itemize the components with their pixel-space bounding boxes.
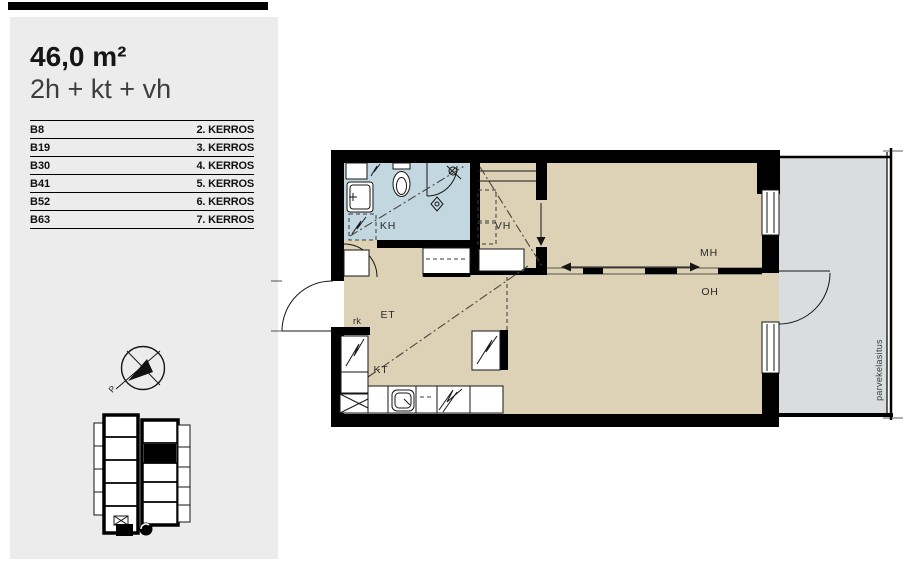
room-label-kt: KT [373,364,388,376]
balcony-floor [779,156,887,413]
hall-closet [344,250,369,276]
livingroom-window [762,322,779,373]
service-shaft [346,163,367,179]
entry-door [271,281,333,331]
kitchen-sink-icon [392,390,414,411]
closet-bench [479,249,524,271]
floorplan-drawing: parvekelasitus KH VH ET KT MH OH rk P [0,0,922,585]
room-label-et: ET [380,309,395,321]
compass-rose: P [106,347,164,395]
cabinet [341,372,368,393]
floorplan-sheet: 46,0 m² 2h + kt + vh B8 2. KERROS B19 3.… [0,0,922,585]
room-label-mh: MH [700,247,718,259]
hall-wardrobe [423,248,470,277]
building-location-diagram [94,415,190,536]
pantry-label-rk: rk [353,316,361,327]
balcony-glazing-label: parvekelasitus [874,339,884,401]
balcony-door-threshold [762,273,779,322]
room-label-kh: KH [380,220,396,232]
room-label-vh: VH [495,220,511,232]
north-needle [128,359,153,381]
sink-icon [347,182,373,212]
floor-fills [344,156,887,414]
room-label-oh: OH [701,286,718,298]
toilet-icon [393,163,410,197]
tall-cabinet-reservation [472,331,500,370]
highlighted-unit [144,444,176,463]
bedroom-window [762,190,779,235]
fridge-reservation [341,336,368,372]
